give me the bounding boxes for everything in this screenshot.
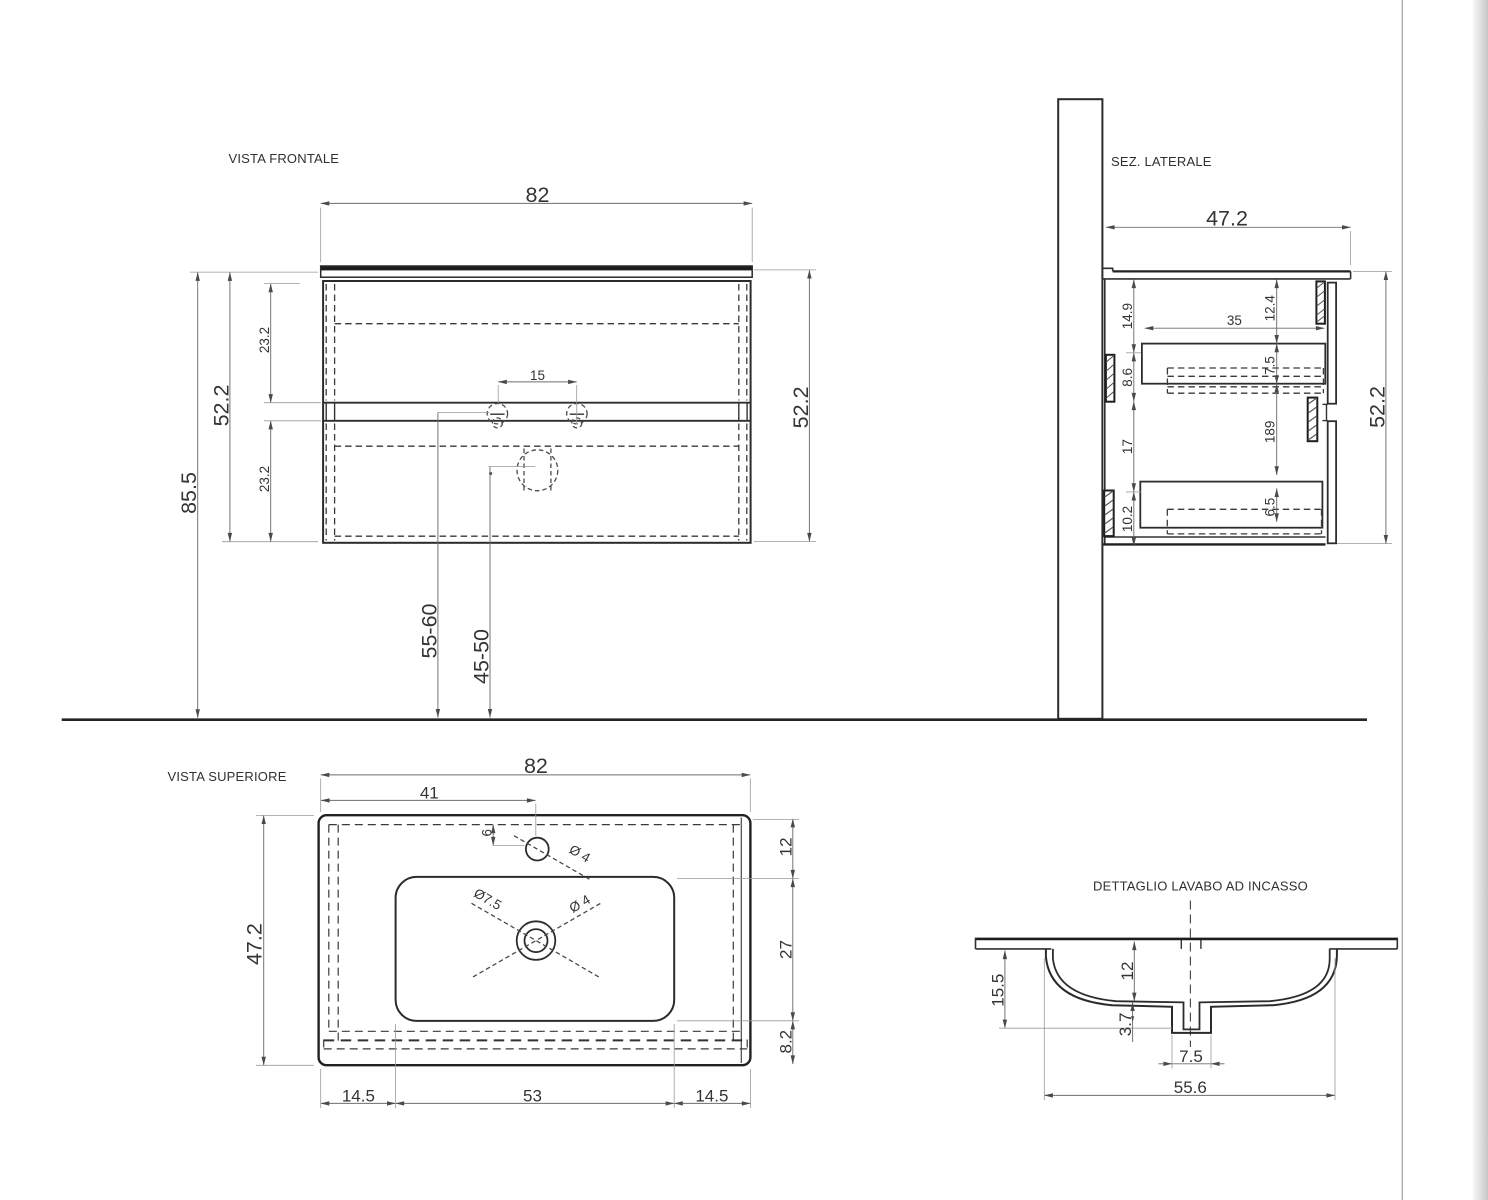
svg-text:12: 12 [1118,962,1137,981]
svg-text:VISTA FRONTALE: VISTA FRONTALE [229,151,340,166]
svg-text:7.5: 7.5 [1263,356,1278,375]
svg-text:47.2: 47.2 [1206,207,1248,231]
svg-text:6: 6 [480,829,495,837]
svg-text:12: 12 [776,837,795,856]
svg-text:189: 189 [1263,421,1278,444]
svg-text:23.2: 23.2 [257,327,272,353]
svg-text:8.6: 8.6 [1120,368,1135,387]
svg-text:SEZ. LATERALE: SEZ. LATERALE [1111,154,1212,169]
svg-text:DETTAGLIO LAVABO AD INCASSO: DETTAGLIO LAVABO AD INCASSO [1093,879,1308,894]
svg-text:14.5: 14.5 [342,1087,375,1106]
svg-text:3.7: 3.7 [1116,1013,1135,1037]
svg-text:55.6: 55.6 [1174,1078,1207,1097]
svg-text:7.5: 7.5 [1179,1047,1203,1066]
svg-text:15.5: 15.5 [988,974,1007,1007]
svg-text:52.2: 52.2 [789,386,813,428]
svg-text:53: 53 [523,1087,542,1106]
svg-text:82: 82 [524,754,548,778]
svg-text:15: 15 [530,368,545,383]
svg-text:17: 17 [1120,439,1135,454]
svg-text:82: 82 [526,183,550,207]
svg-text:14.9: 14.9 [1120,303,1135,329]
svg-text:45-50: 45-50 [469,629,493,684]
svg-text:52.2: 52.2 [209,385,233,427]
svg-text:12.4: 12.4 [1263,295,1278,322]
svg-text:10.2: 10.2 [1120,506,1135,532]
svg-text:14.5: 14.5 [695,1087,728,1106]
svg-text:6.5: 6.5 [1263,498,1278,517]
svg-text:VISTA SUPERIORE: VISTA SUPERIORE [168,769,287,784]
svg-text:8.2: 8.2 [776,1030,795,1054]
svg-text:85.5: 85.5 [177,472,201,514]
svg-text:52.2: 52.2 [1365,386,1389,428]
svg-text:35: 35 [1227,313,1242,328]
svg-text:27: 27 [776,940,795,959]
svg-text:47.2: 47.2 [243,923,267,965]
svg-text:41: 41 [420,784,439,803]
svg-text:23.2: 23.2 [257,466,272,492]
svg-text:55-60: 55-60 [417,603,441,658]
